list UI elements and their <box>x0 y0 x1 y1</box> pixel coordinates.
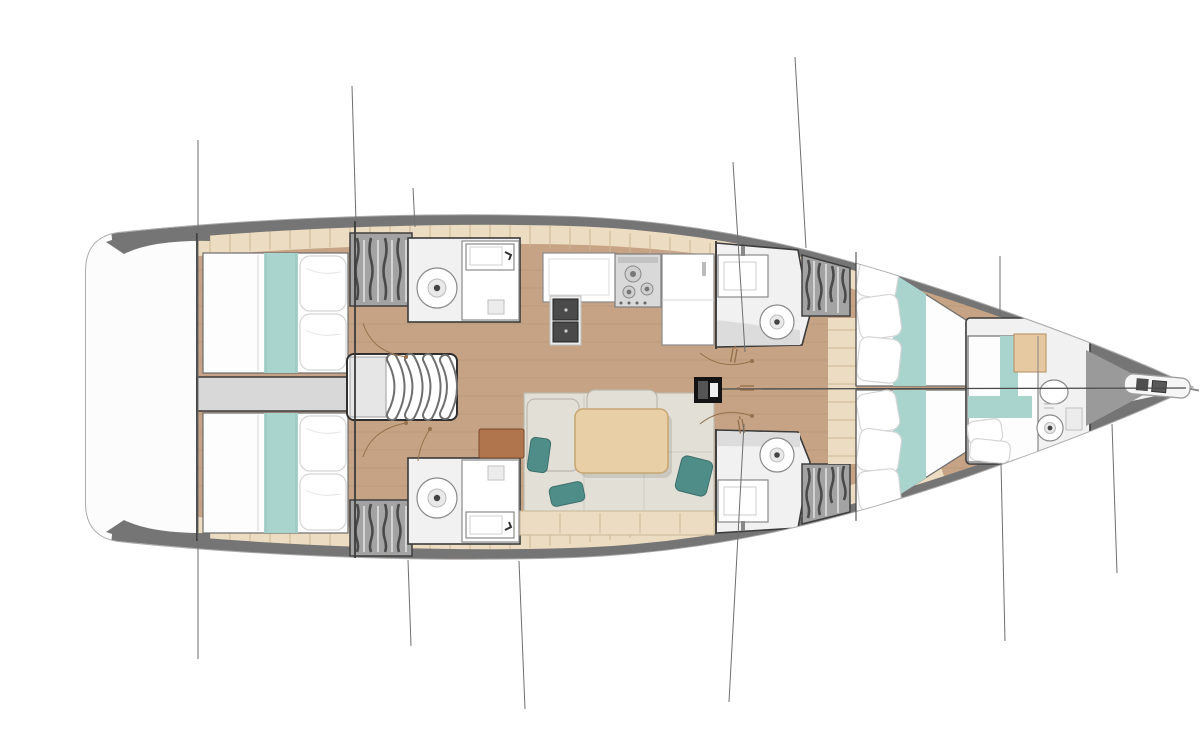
aft-cabin-top <box>203 253 348 373</box>
aft-head-bottom <box>408 458 520 544</box>
pillow <box>855 389 901 435</box>
companionway-stairs <box>347 354 457 420</box>
nav-unit <box>479 429 524 458</box>
mast-foot <box>694 377 722 403</box>
sink <box>718 480 768 522</box>
mid-head-bottom <box>716 430 810 533</box>
pillow <box>855 255 901 301</box>
aft-bed-top-runner <box>264 253 298 373</box>
fridge-column <box>662 254 714 345</box>
aft-head-top <box>408 238 520 322</box>
locker-aft-bottom <box>350 500 412 556</box>
pillow <box>856 336 902 384</box>
locker-aft-top <box>350 233 412 306</box>
engine-corridor <box>197 377 360 411</box>
head-stool <box>488 300 504 314</box>
pillow <box>855 427 902 474</box>
toilet <box>417 478 457 518</box>
shower-seat <box>1066 408 1082 430</box>
toilet <box>760 438 794 472</box>
pillow <box>300 256 346 311</box>
forward-berth-bottom <box>855 389 966 522</box>
pillow <box>969 438 1011 464</box>
pillow <box>855 293 902 340</box>
head-stool <box>488 466 504 480</box>
aft-cabin-bottom <box>203 413 348 533</box>
aft-bed-bottom-runner <box>264 413 298 533</box>
floor-plan-svg <box>0 0 1200 756</box>
faucet <box>741 521 745 531</box>
stern-platform <box>84 220 197 550</box>
mid-head-top <box>716 243 810 347</box>
bow-cabinet <box>1014 334 1046 372</box>
boat-floor-plan-page <box>0 0 1200 756</box>
salon-table <box>575 409 668 473</box>
pillow <box>300 314 346 370</box>
sink <box>1040 380 1068 404</box>
toilet <box>417 268 457 308</box>
sink <box>718 255 768 297</box>
stove <box>615 254 661 307</box>
toilet <box>760 305 794 339</box>
pillow <box>300 416 346 471</box>
forward-berth-top <box>855 250 966 386</box>
sink <box>466 244 514 270</box>
salon-bench <box>520 511 714 535</box>
pillow <box>300 474 346 530</box>
forward-walkway <box>828 318 856 464</box>
bow-cabin <box>966 318 1090 464</box>
faucet <box>741 246 745 256</box>
